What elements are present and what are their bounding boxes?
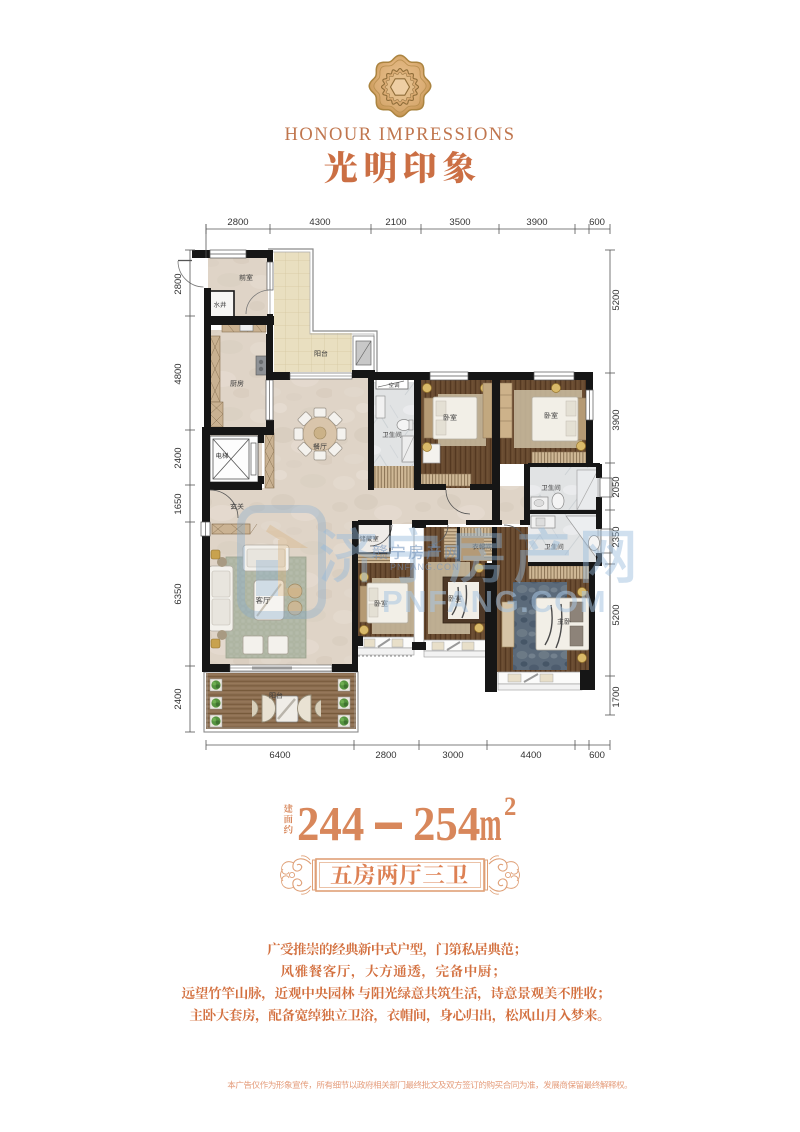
svg-text:2800: 2800 [173,273,184,294]
svg-text:2: 2 [504,792,516,821]
svg-text:5200: 5200 [611,604,622,625]
svg-text:6350: 6350 [173,583,184,604]
svg-text:1650: 1650 [173,493,184,514]
svg-text:3900: 3900 [526,217,547,228]
svg-text:2050: 2050 [611,476,622,497]
svg-text:244: 244 [297,797,364,851]
svg-text:5200: 5200 [611,289,622,310]
svg-text:2800: 2800 [227,217,248,228]
svg-text:3000: 3000 [442,750,463,761]
svg-text:3900: 3900 [611,409,622,430]
svg-text:6400: 6400 [269,750,290,761]
svg-text:1700: 1700 [611,686,622,707]
svg-text:4800: 4800 [173,363,184,384]
svg-text:600: 600 [589,217,605,228]
svg-text:254: 254 [413,797,480,851]
svg-text:4400: 4400 [520,750,541,761]
svg-text:PNFANG.COM: PNFANG.COM [382,584,607,619]
svg-text:600: 600 [589,750,605,761]
svg-text:3500: 3500 [449,217,470,228]
svg-text:2400: 2400 [173,447,184,468]
svg-text:m: m [480,796,502,851]
svg-text:PNFANG.CON: PNFANG.CON [390,562,460,572]
svg-text:2100: 2100 [385,217,406,228]
svg-text:2400: 2400 [173,688,184,709]
svg-text:HONOUR IMPRESSIONS: HONOUR IMPRESSIONS [284,125,515,145]
svg-text:4300: 4300 [309,217,330,228]
svg-text:2800: 2800 [375,750,396,761]
